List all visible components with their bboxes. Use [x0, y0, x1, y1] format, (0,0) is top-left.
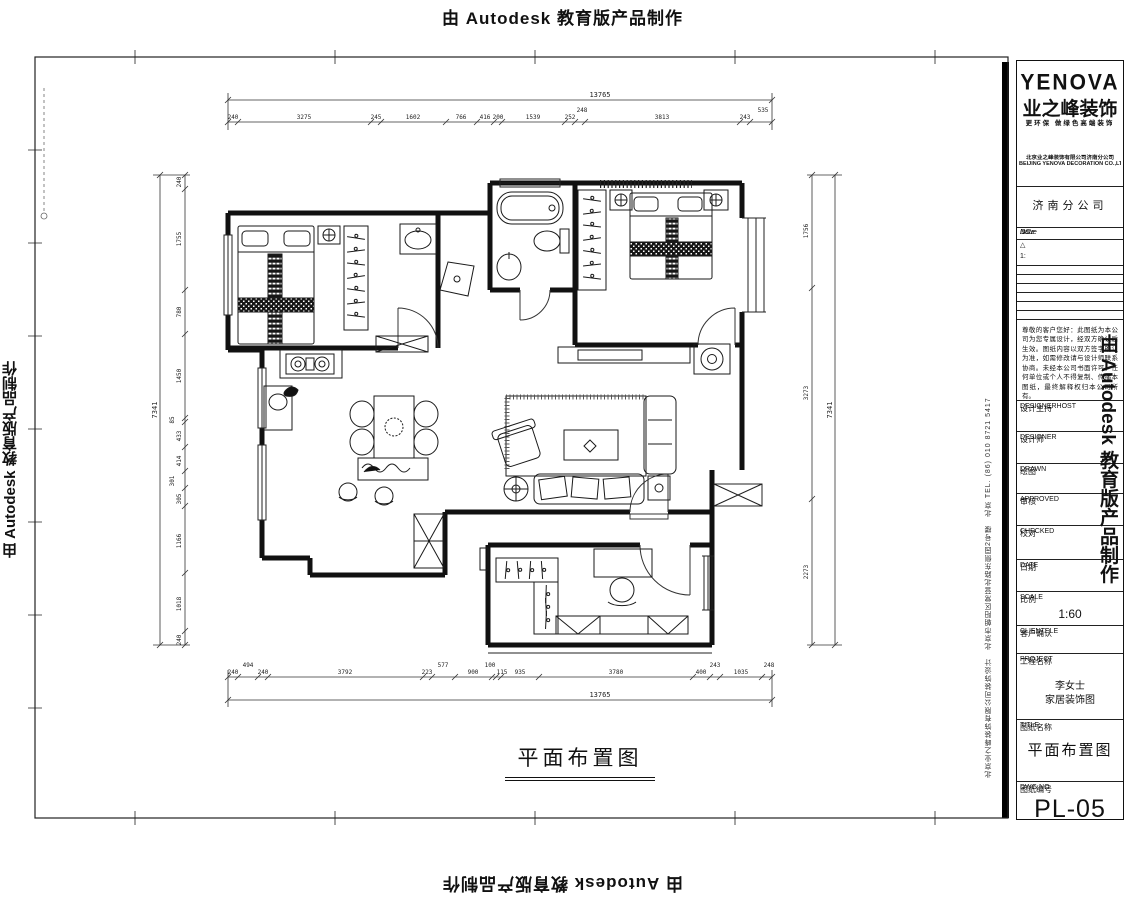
svg-text:240: 240 — [258, 669, 269, 676]
svg-text:243: 243 — [740, 114, 751, 121]
autodesk-watermark-right: 由 Autodesk 教育版产品制作 — [1094, 314, 1121, 604]
svg-text:248: 248 — [764, 662, 775, 669]
svg-text:248: 248 — [577, 107, 588, 114]
yenova-logo: YENOVA — [1017, 70, 1123, 95]
dim-left-overall: 7341 — [151, 402, 159, 419]
svg-text:1450: 1450 — [176, 368, 183, 383]
master-bedroom-furniture — [578, 190, 728, 290]
svg-text:3780: 3780 — [609, 669, 624, 676]
svg-text:935: 935 — [515, 669, 526, 676]
sheet-frame — [28, 50, 1008, 825]
doors — [398, 290, 735, 595]
svg-text:1755: 1755 — [176, 231, 183, 246]
svg-text:1602: 1602 — [406, 114, 421, 121]
drawing-sheet: 由 Autodesk 教育版产品制作 由 Autodesk 教育版产品制作 由 … — [0, 0, 1125, 900]
sheet-title: 平面布置图 — [1017, 739, 1123, 760]
bathroom-fixtures — [497, 192, 569, 280]
dim-right-overall: 7341 — [826, 402, 834, 419]
svg-text:243: 243 — [710, 662, 721, 669]
svg-text:3813: 3813 — [655, 114, 670, 121]
branch-name: 济南分公司 — [1017, 197, 1123, 213]
dim-bottom-overall: 13765 — [589, 691, 610, 699]
svg-text:416: 416 — [480, 114, 491, 121]
company-address-vertical-text: 北京业之峰装饰有限公司装饰设计 北京市朝阳区常营北路东侧园2号楼 北京 TEL.… — [984, 138, 994, 778]
svg-text:1166: 1166 — [176, 533, 183, 548]
svg-text:240: 240 — [228, 669, 239, 676]
svg-text:1018: 1018 — [176, 596, 183, 611]
svg-text:400: 400 — [696, 669, 707, 676]
svg-text:766: 766 — [456, 114, 467, 121]
svg-text:1035: 1035 — [734, 669, 749, 676]
svg-text:2273: 2273 — [803, 564, 810, 579]
company-line-2: BEIJING YENOVA DECORATION CO.,LTD. — [1019, 161, 1121, 167]
svg-text:1756: 1756 — [803, 223, 810, 238]
svg-text:305: 305 — [176, 493, 183, 504]
dim-top-overall: 13765 — [589, 91, 610, 99]
svg-text:245: 245 — [371, 114, 382, 121]
svg-text:577: 577 — [438, 662, 449, 669]
svg-text:240: 240 — [176, 176, 183, 187]
study-furniture — [480, 548, 688, 634]
company-line-1: 北京业之峰装饰有限公司济南分公司 — [1019, 153, 1121, 161]
svg-text:85: 85 — [169, 416, 176, 424]
svg-text:3273: 3273 — [803, 385, 810, 400]
svg-text:1539: 1539 — [526, 114, 541, 121]
svg-text:252: 252 — [565, 114, 576, 121]
svg-text:433: 433 — [176, 430, 183, 441]
svg-text:240: 240 — [176, 634, 183, 645]
scale-value: 1:60 — [1017, 607, 1123, 621]
dwg-number: PL-05 — [1017, 795, 1123, 824]
svg-text:900: 900 — [468, 669, 479, 676]
tv-cabinet — [558, 344, 730, 374]
svg-text:3792: 3792 — [338, 669, 353, 676]
svg-text:100: 100 — [485, 662, 496, 669]
svg-text:115: 115 — [497, 669, 508, 676]
kitchen-dining-furniture — [264, 336, 444, 568]
svg-text:223: 223 — [422, 669, 433, 676]
svg-text:240: 240 — [228, 114, 239, 121]
svg-text:414: 414 — [176, 455, 183, 466]
living-room-furniture — [491, 396, 676, 504]
svg-text:200: 200 — [493, 114, 504, 121]
project-client: 李女士 — [1017, 677, 1123, 692]
svg-text:494: 494 — [243, 662, 254, 669]
project-name: 家居装饰图 — [1017, 691, 1123, 706]
svg-text:3275: 3275 — [297, 114, 312, 121]
svg-text:780: 780 — [176, 306, 183, 317]
svg-text:535: 535 — [758, 107, 769, 114]
drawing-caption: 平面布置图 — [505, 742, 655, 781]
svg-text:301: 301 — [169, 475, 176, 486]
brand-slogan: 更环保 做绿色高端装饰 — [1017, 117, 1123, 127]
